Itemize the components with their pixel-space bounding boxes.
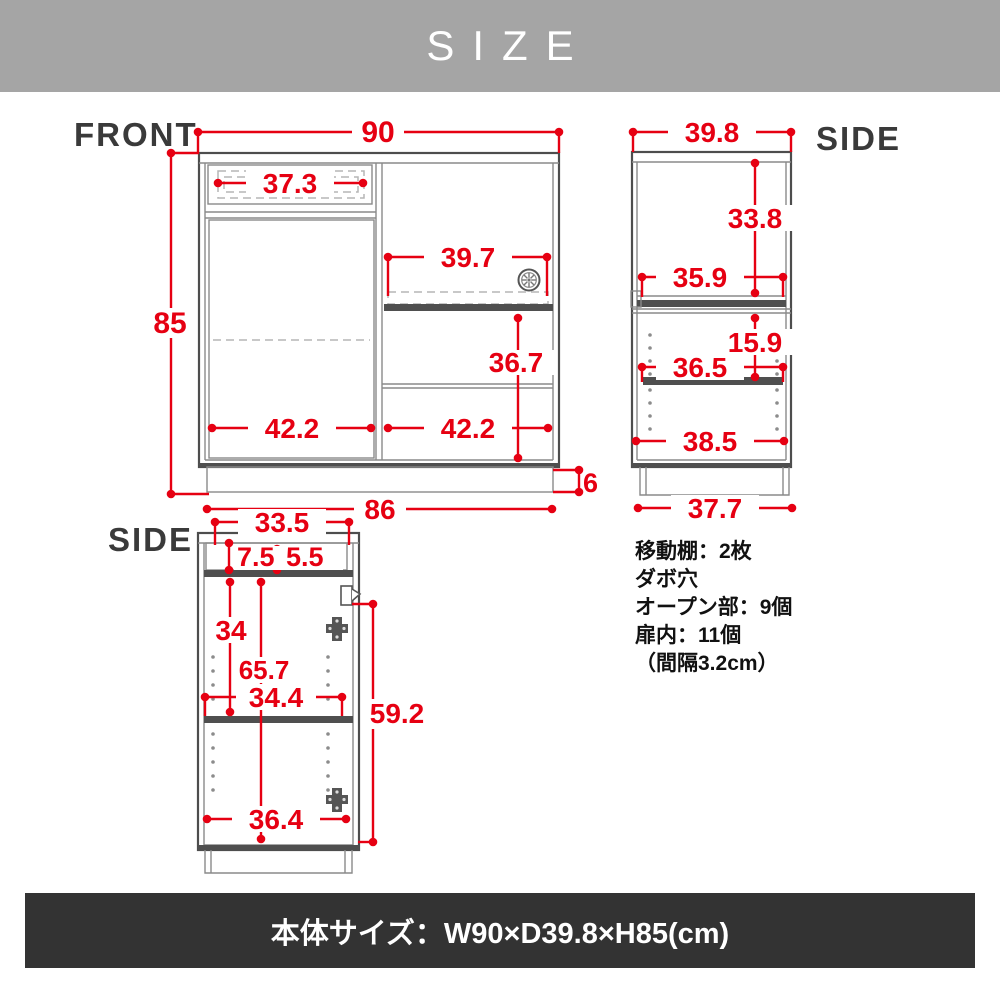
- spec-line: 扉内：11個: [635, 622, 792, 650]
- dim-front-open-section-height: 36.7: [489, 347, 544, 378]
- dim-side-lower-top-gap: 15.9: [728, 327, 783, 358]
- side-bottom-base: [205, 850, 352, 873]
- side-bottom-view: 33.5 7.5 5.5 34 65.7 34.4 59.2 36.4 SIDE: [108, 507, 436, 873]
- hinge-icon: [326, 617, 348, 641]
- front-view-label: FRONT: [74, 116, 198, 153]
- side-top-base: [640, 467, 789, 495]
- dim-front-left-inner-width: 42.2: [265, 413, 320, 444]
- front-slide-shelf: [388, 292, 548, 304]
- side-top-counter: [637, 300, 786, 307]
- side-top-view-label: SIDE: [816, 120, 901, 157]
- dim-side-upper-inner-depth: 35.9: [673, 262, 728, 293]
- front-view: 90 85 37.3 39.7 36.7 42.2 42.2 86 6 FRON…: [74, 116, 598, 525]
- dim-sideb-drawer-inner-height: 5.5: [286, 542, 324, 572]
- dim-side-upper-inner-height: 33.8: [728, 203, 783, 234]
- furniture-dimension-diagram: 90 85 37.3 39.7 36.7 42.2 42.2 86 6 FRON…: [0, 0, 1000, 1000]
- dim-side-shelf-depth: 36.5: [673, 352, 728, 383]
- dim-front-base-height: 6: [583, 468, 598, 498]
- overall-size-banner: 本体サイズ：W90×D39.8×H85(cm): [25, 893, 975, 968]
- side-top-view: 39.8 33.8 35.9 15.9 36.5 38.5 37.7 SIDE: [629, 117, 901, 524]
- spec-line: ダボ穴: [635, 566, 792, 594]
- spec-line: 移動棚：2枚: [635, 538, 792, 566]
- fan-grommet-icon: [519, 270, 540, 291]
- dim-sideb-upper-door-inner: 34: [215, 615, 247, 646]
- dim-front-drawer-width: 37.3: [263, 168, 318, 199]
- dim-sideb-top-inner-depth: 33.5: [255, 507, 310, 538]
- spec-line: （間隔3.2cm）: [635, 650, 792, 678]
- dim-sideb-bottom-inner-depth: 36.4: [249, 804, 304, 835]
- size-spec-page: SIZE: [0, 0, 1000, 1000]
- dim-side-lower-inner-depth: 38.5: [683, 426, 738, 457]
- dim-front-overall-height: 85: [153, 307, 186, 340]
- dim-sideb-drawer-front-height: 7.5: [237, 542, 275, 572]
- dim-sideb-shelf-inner-depth: 34.4: [249, 682, 304, 713]
- dim-front-overall-width: 90: [361, 116, 394, 149]
- side-bottom-view-label: SIDE: [108, 521, 193, 558]
- front-dimension-dots: [167, 128, 584, 514]
- spec-line: オープン部：9個: [635, 594, 792, 622]
- dim-front-right-inner-width: 42.2: [441, 413, 496, 444]
- shelf-specs-note: 移動棚：2枚 ダボ穴 オープン部：9個 扉内：11個 （間隔3.2cm）: [635, 538, 792, 678]
- hinge-icon: [326, 788, 348, 812]
- overall-size-label: 本体サイズ：W90×D39.8×H85(cm): [271, 910, 729, 952]
- dim-sideb-door-height: 59.2: [370, 698, 425, 729]
- side-bottom-shelf: [204, 716, 353, 723]
- dim-side-base-depth: 37.7: [688, 493, 743, 524]
- dim-front-slide-shelf-width: 39.7: [441, 242, 496, 273]
- dim-side-overall-depth: 39.8: [685, 117, 740, 148]
- door-catch-icon: [341, 586, 360, 605]
- front-base: [207, 467, 553, 492]
- dim-front-base-width: 86: [364, 494, 395, 525]
- dim-sideb-door-inner-height: 65.7: [239, 655, 290, 685]
